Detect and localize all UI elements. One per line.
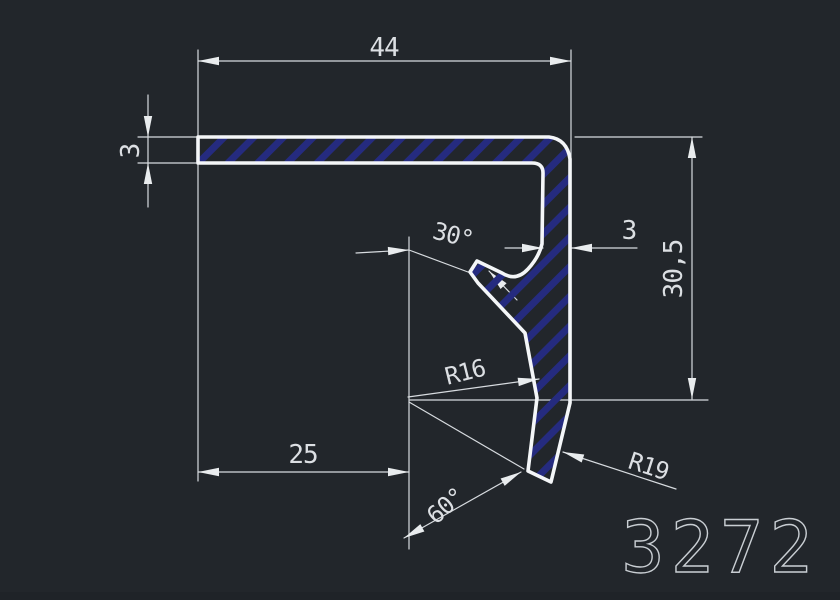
dim-label-30deg: 30° [430,217,476,254]
dim-label-r19: R19 [625,447,672,486]
dim-label-44: 44 [369,33,399,63]
angle-30-slanted-line [409,250,468,272]
profile-outline [198,137,570,482]
arrow-60-upper [501,468,523,486]
arrow-44-left [198,57,219,65]
angle-60-slanted-line [409,402,524,469]
dim-label-30-5: 30,5 [659,240,689,299]
dim-label-3-flange: 3 [116,144,146,159]
arrow-30deg [388,246,409,255]
arrow-3-top [144,116,152,137]
dimension-texts: 44 3 30,5 3 25 30° R16 R19 60° [116,33,689,530]
arrow-60-lower [402,524,424,542]
arrow-25-left [198,468,219,476]
dim-label-25: 25 [288,440,317,470]
arrow-30-5-bottom [688,378,696,399]
arrow-30-5-top [688,137,696,158]
bottom-edge-strip [0,592,840,600]
arrow-3-wall-right [571,244,592,252]
dim-label-r16: R16 [442,354,488,391]
arrow-r19 [562,448,585,462]
arrow-44-right [550,57,571,65]
dim-label-60deg: 60° [421,482,470,530]
arrow-3-bottom [144,163,152,184]
technical-drawing: 44 3 30,5 3 25 30° R16 R19 60° 3272 [0,0,840,600]
dimension-lines [138,50,708,549]
cad-viewport: 44 3 30,5 3 25 30° R16 R19 60° 3272 [0,0,840,600]
drawing-number: 3272 [621,505,818,589]
dim-label-3-wall: 3 [622,216,637,246]
arrow-25-right [388,468,409,476]
